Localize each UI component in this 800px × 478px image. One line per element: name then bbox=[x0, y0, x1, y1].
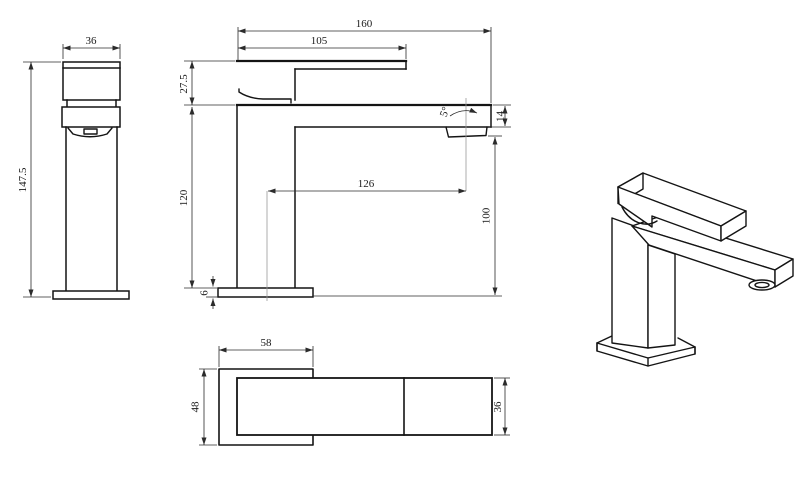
side-view: 160 105 27.5 120 6 126 100 14 5° bbox=[178, 18, 511, 309]
dim-front-handle-width: 36 bbox=[86, 35, 98, 47]
side-aerator bbox=[446, 127, 487, 137]
dim-top-base-length: 58 bbox=[261, 337, 273, 349]
technical-drawing-page: 36 147.5 160 105 bbox=[0, 0, 800, 478]
angle-arc bbox=[450, 111, 477, 116]
dim-top-spout-width: 36 bbox=[492, 401, 504, 413]
dim-side-spout-angle: 5° bbox=[438, 105, 453, 118]
front-aerator-slot bbox=[84, 129, 97, 134]
front-base-plate bbox=[53, 291, 129, 299]
front-spout-outline bbox=[62, 107, 120, 127]
side-dome-profile bbox=[239, 89, 291, 103]
dim-side-overall-length: 160 bbox=[356, 18, 373, 30]
dim-side-handle-length: 105 bbox=[311, 35, 328, 47]
persp-aerator-ring bbox=[749, 280, 775, 290]
front-view: 36 147.5 bbox=[17, 35, 129, 299]
top-view: 58 48 36 bbox=[190, 337, 511, 445]
side-base-plate bbox=[218, 288, 313, 297]
faucet-technical-drawing: 36 147.5 160 105 bbox=[0, 0, 800, 478]
dim-side-spout-reach: 126 bbox=[358, 178, 375, 190]
dim-top-base-depth: 48 bbox=[190, 401, 202, 413]
persp-base-back-right-edge bbox=[678, 338, 695, 347]
dim-side-outlet-height: 100 bbox=[481, 207, 493, 224]
dim-side-base-thickness: 6 bbox=[199, 290, 211, 296]
persp-column-right-face bbox=[648, 245, 675, 348]
perspective-view bbox=[597, 173, 793, 366]
dim-side-body-height: 120 bbox=[178, 189, 190, 206]
dim-front-overall-height: 147.5 bbox=[17, 167, 29, 192]
top-spout-outline bbox=[237, 378, 492, 435]
dim-side-spout-end-height: 14 bbox=[495, 111, 507, 123]
dim-side-handle-height: 27.5 bbox=[178, 74, 190, 94]
